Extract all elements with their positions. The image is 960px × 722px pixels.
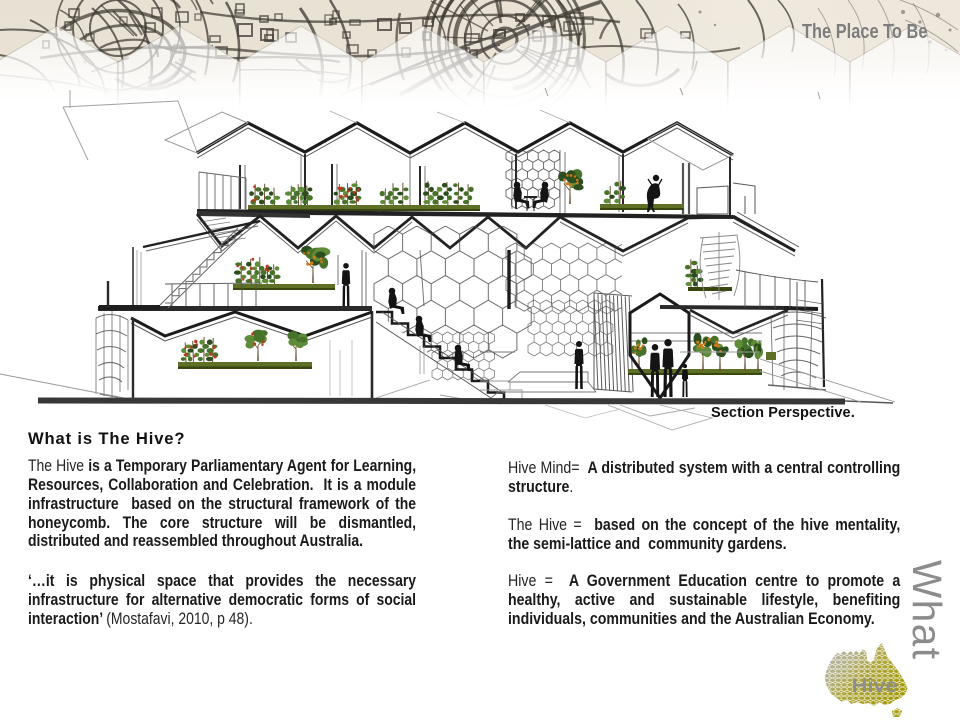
svg-text:Hive: Hive — [852, 675, 898, 697]
